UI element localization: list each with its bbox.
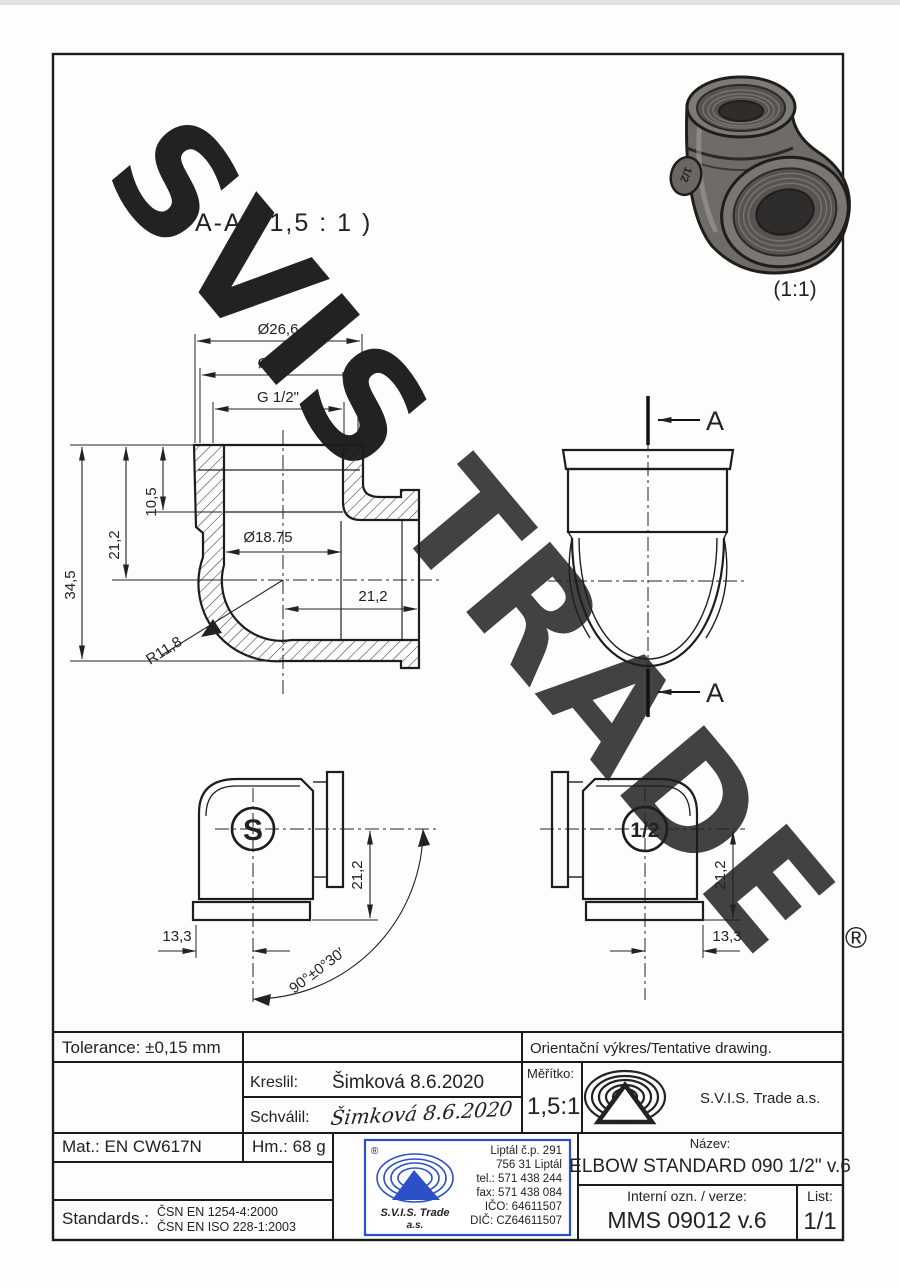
drawing-sheet: SVIS TRADE ® 1/2 (1:1): [0, 0, 900, 1288]
back-badge-label: 1/2: [630, 819, 659, 842]
stamp-address-line: Liptál č.p. 291: [490, 1145, 562, 1157]
material-text: Mat.: EN CW617N: [62, 1137, 202, 1156]
dim-axis-right: 21,2: [358, 588, 387, 605]
standards-line-1: ČSN EN 1254-4:2000: [157, 1204, 278, 1219]
stamp-address-line: DIČ: CZ64611507: [470, 1214, 562, 1227]
company-name: S.V.I.S. Trade a.s.: [700, 1090, 820, 1107]
cut-label-bottom: A: [706, 678, 724, 708]
stamp-registered-icon: ®: [371, 1146, 379, 1157]
front-view: S 21,2 13,3 90°±0°30′: [158, 772, 438, 1006]
list-value: 1/1: [803, 1208, 836, 1235]
stamp-address-line: 756 31 Liptál: [496, 1159, 562, 1171]
front-outline: [193, 772, 343, 920]
watermark-registered-icon: ®: [845, 922, 867, 955]
company-stamp: ® S.V.I.S. Trade a.s. Liptál č.p. 291 75…: [365, 1140, 570, 1235]
standards-label: Standards.:: [62, 1209, 149, 1228]
nazev-label: Název:: [690, 1136, 730, 1151]
front-dim-height: 21,2: [349, 860, 366, 889]
kreslil-label: Kreslil:: [250, 1074, 298, 1091]
product-photo: 1/2 (1:1): [667, 77, 861, 301]
company-logo: [585, 1071, 665, 1123]
dim-radius: R11,8: [143, 633, 185, 668]
tolerance-text: Tolerance: ±0,15 mm: [62, 1038, 221, 1057]
front-badge-label: S: [243, 814, 263, 847]
list-label: List:: [807, 1188, 833, 1204]
kreslil-value: Šimková 8.6.2020: [332, 1071, 484, 1093]
stamp-address-line: IČO: 64611507: [485, 1200, 562, 1213]
watermark-word-trade: TRADE: [361, 431, 868, 988]
title-block: Tolerance: ±0,15 mm Orientační výkres/Te…: [53, 1032, 851, 1240]
front-dim-lines: [158, 829, 423, 999]
stamp-address-line: fax: 571 438 084: [476, 1187, 562, 1199]
photo-scale-label: (1:1): [773, 278, 816, 301]
stamp-company-line1: S.V.I.S. Trade: [380, 1207, 449, 1219]
front-dim-width: 13,3: [162, 928, 191, 945]
back-dim-height: 21,2: [712, 860, 729, 889]
front-ext-lines: [196, 920, 378, 958]
interni-value: MMS 09012 v.6: [607, 1207, 766, 1233]
standards-line-2: ČSN EN ISO 228-1:2003: [157, 1219, 296, 1234]
schvalil-signature: Šimková 8.6.2020: [329, 1096, 514, 1130]
dim-outer-dia: Ø26,6: [258, 321, 299, 338]
nazev-value: ELBOW STANDARD 090 1/2" v.6: [569, 1156, 851, 1177]
meritko-label: Měřítko:: [527, 1066, 574, 1081]
dim-height: 34,5: [62, 570, 79, 599]
drawing-canvas: SVIS TRADE ® 1/2 (1:1): [0, 0, 900, 1288]
front-dim-angle: 90°±0°30′: [286, 945, 348, 998]
dim-bore: Ø18.75: [243, 529, 292, 546]
dim-thread: G 1/2": [257, 389, 299, 406]
dim-axis-top: 21,2: [106, 530, 123, 559]
dim-thread-depth: 10,5: [143, 487, 160, 516]
meritko-value: 1,5:1: [527, 1093, 580, 1120]
weight-text: Hm.: 68 g: [252, 1137, 326, 1156]
back-dim-width: 13,3: [712, 928, 741, 945]
section-ext-left: [70, 445, 280, 661]
tentative-text: Orientační výkres/Tentative drawing.: [530, 1040, 772, 1057]
stamp-address-line: tel.: 571 438 244: [476, 1173, 562, 1185]
photo-top-socket: [687, 77, 795, 137]
cut-label-top: A: [706, 406, 724, 436]
scan-edge: [0, 0, 900, 5]
angle-arrow-bottom: [253, 994, 271, 1006]
angle-arrow-top: [418, 829, 430, 847]
dim-mouth-dia: Ø25,5: [258, 355, 299, 372]
stamp-company-line2: a.s.: [407, 1220, 424, 1231]
section-title: A-A ( 1,5 : 1 ): [195, 209, 372, 237]
interni-label: Interní ozn. / verze:: [627, 1188, 747, 1204]
schvalil-label: Schválil:: [250, 1109, 310, 1126]
